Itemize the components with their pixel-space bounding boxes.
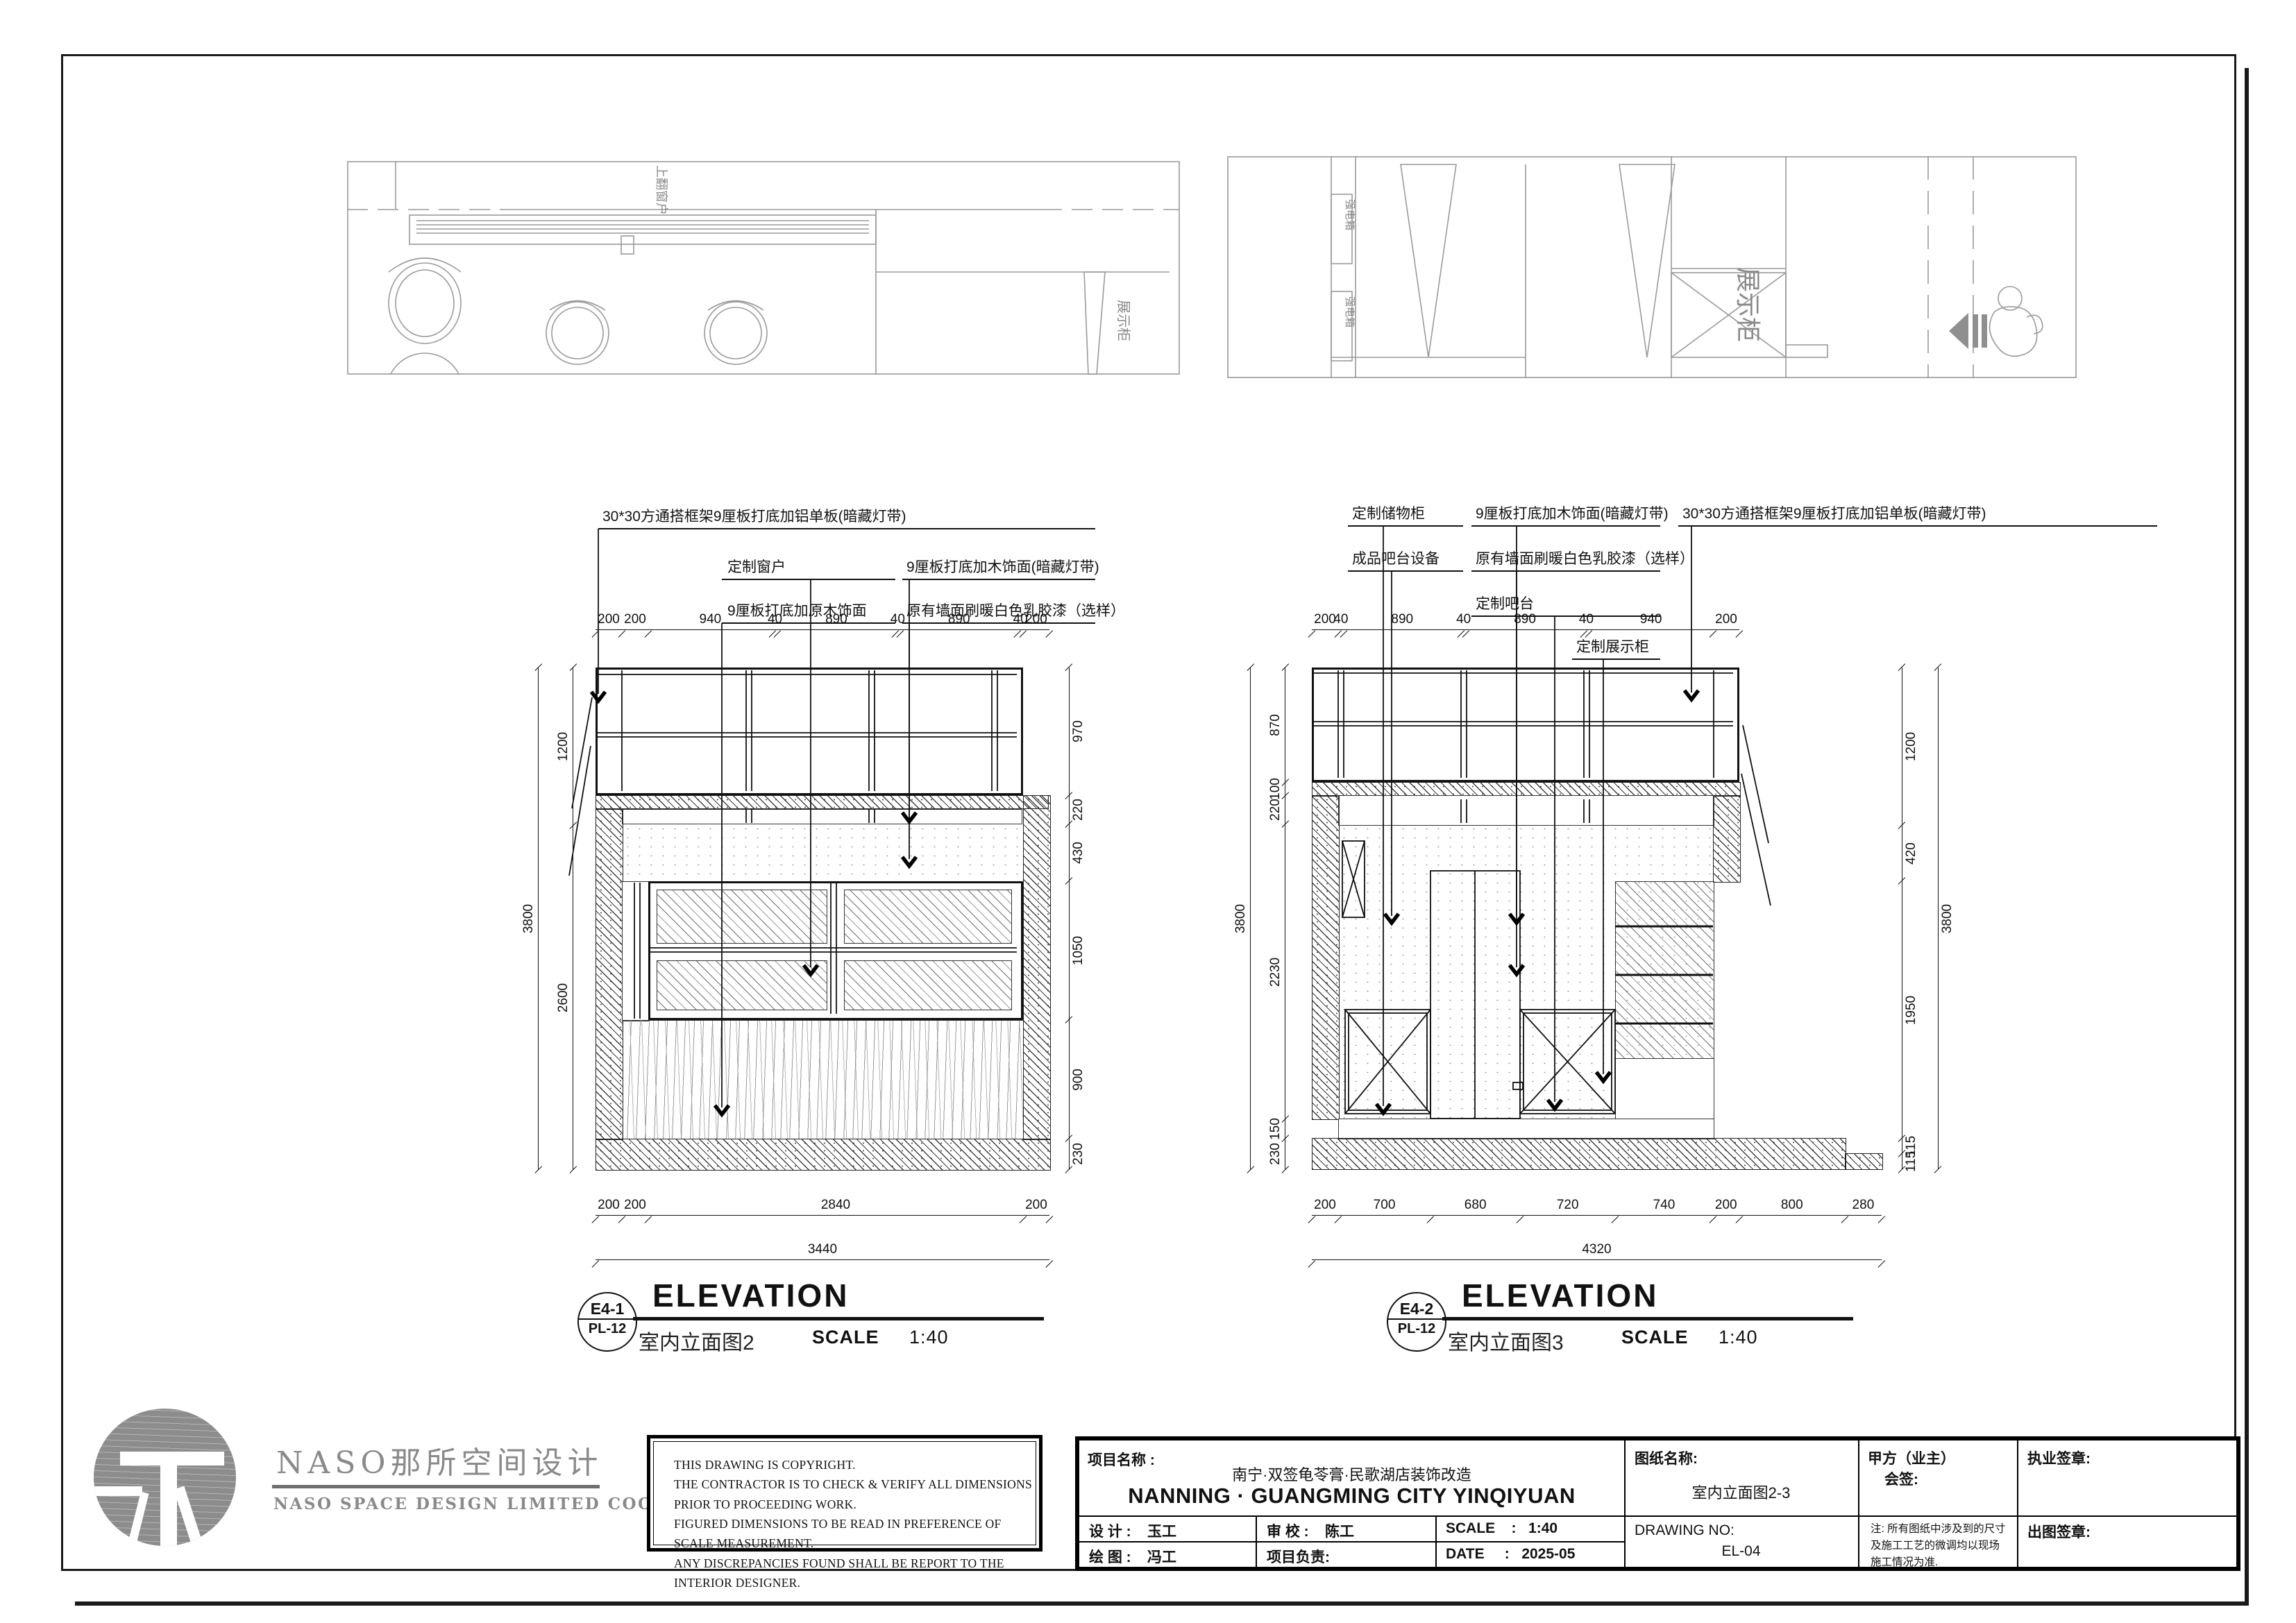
dimension-value: 230 [1268, 1143, 1283, 1165]
dimension-value: 940 [700, 612, 722, 627]
elev2-callout-aluminum-panel: 30*30方通搭框架9厘板打底加铝单板(暗藏灯带) [602, 505, 906, 526]
page-shadow-bottom [75, 1601, 2249, 1606]
revision-note: 注: 所有图纸中涉及到的尺寸及施工工艺的微调均以现场施工情况为准. [1871, 1521, 2009, 1571]
elev2-dims-top: 200200940408904089040200 [596, 609, 1049, 630]
drawing-no-label: DRAWING NO: [1635, 1522, 1734, 1539]
elev3-dims-left: 8701002202230150230 [1266, 668, 1285, 1169]
dimension-value: 200 [598, 612, 620, 627]
elev3-dims-left-total: 3800 [1231, 668, 1251, 1169]
elev3-callout-latex-paint: 原有墙面刷暖白色乳胶漆（选样） [1476, 547, 1694, 568]
checker-label: 审 校 : [1267, 1524, 1309, 1540]
elev3-tag-bubble: E4-2 PL-12 [1387, 1292, 1446, 1352]
dimension-value: 1200 [1904, 732, 1919, 761]
copyright-box: THIS DRAWING IS COPYRIGHT. THE CONTRACTO… [647, 1435, 1043, 1552]
elev3-toe-kick [1338, 1119, 1714, 1139]
dimension-value: 720 [1557, 1198, 1579, 1213]
copyright-line-1: THIS DRAWING IS COPYRIGHT. [674, 1455, 1039, 1475]
date-label: DATE [1446, 1546, 1485, 1562]
dimension-value: 1950 [1904, 996, 1919, 1025]
designer-cell: 设 计 : 玉工 [1089, 1520, 1176, 1541]
dimension-value: 1200 [556, 732, 571, 761]
elev3-callout-bar-equipment: 成品吧台设备 [1352, 547, 1440, 568]
title-block: 项目名称 : 南宁·双签龟苓膏·民歌湖店装饰改造 NANNING · GUANG… [1075, 1436, 2240, 1571]
company-logo-mark [94, 1409, 236, 1546]
elev2-callout-wood-finish: 9厘板打底加木饰面(暗藏灯带) [906, 556, 1099, 577]
dimension-value: 940 [1640, 612, 1662, 627]
issue-seal-label: 出图签章: [2027, 1521, 2091, 1542]
elev3-title-cn: 室内立面图3 [1448, 1325, 1564, 1356]
drafter-value: 冯工 [1147, 1549, 1176, 1565]
elev2-tag: E4-1 [591, 1293, 625, 1318]
dimension-value: 200 [624, 612, 646, 627]
project-lead-cell: 项目负责: [1267, 1546, 1330, 1567]
dimension-value: 740 [1653, 1198, 1675, 1213]
elev3-callout-display-cabinet: 定制展示柜 [1576, 636, 1649, 656]
elev3-top-frame [1312, 668, 1739, 782]
elev3-dims-top: 200408904089040940200 [1312, 609, 1739, 630]
elev2-scale-label: SCALE [812, 1327, 879, 1348]
scale-cell: SCALE : 1:40 [1446, 1520, 1558, 1537]
drafter-cell: 绘 图 : 冯工 [1089, 1546, 1176, 1567]
elev3-dims-right: 12004201950115115 [1902, 668, 1921, 1169]
scale-label: SCALE [1446, 1520, 1495, 1536]
dimension-value: 970 [1071, 720, 1086, 742]
elev3-display-base [1615, 1058, 1714, 1120]
dimension-value: 800 [1781, 1198, 1803, 1213]
elev3-title-underline [1442, 1317, 1853, 1320]
dimension-value: 2230 [1268, 957, 1283, 986]
checker-value: 陈工 [1325, 1524, 1354, 1540]
elev2-slab-band [596, 795, 1049, 809]
elev3-scale-value: 1:40 [1719, 1327, 1758, 1348]
sheet-name-label: 图纸名称: [1635, 1447, 1698, 1468]
elev3-slab-band [1312, 782, 1741, 797]
drafter-label: 绘 图 : [1089, 1549, 1131, 1565]
elev3-dims-bottom-total: 4320 [1312, 1239, 1882, 1260]
elev2-tag-bubble: E4-1 PL-12 [577, 1292, 637, 1352]
copyright-line-3: FIGURED DIMENSIONS TO BE READ IN PREFERE… [674, 1514, 1039, 1554]
elev3-display-glass [1615, 881, 1714, 1060]
elev2-dims-left-total: 3800 [519, 668, 539, 1169]
elev3-floor-step [1845, 1153, 1883, 1170]
elev2-title-cn: 室内立面图2 [639, 1325, 754, 1356]
elev2-callout-custom-window: 定制窗户 [727, 556, 786, 577]
elev3-dims-right-total: 3800 [1938, 668, 1957, 1169]
dimension-value: 890 [1514, 612, 1536, 627]
date-cell: DATE : 2025-05 [1446, 1546, 1575, 1563]
elev2-window-pane-1 [657, 890, 827, 944]
elev2-dims-left: 12002600 [554, 668, 573, 1169]
elev3-tag: E4-2 [1400, 1293, 1434, 1318]
elev3-dims-bottom: 200700680720740200800280 [1312, 1195, 1882, 1216]
elev3-callout-aluminum-panel: 30*30方通搭框架9厘板打底加铝单板(暗藏灯带) [1682, 502, 1986, 523]
dimension-value: 3800 [1233, 903, 1249, 933]
copyright-line-2: THE CONTRACTOR IS TO CHECK & VERIFY ALL … [674, 1475, 1039, 1514]
dimension-value: 150 [1268, 1118, 1283, 1140]
scale-value: 1:40 [1528, 1520, 1558, 1536]
dimension-value: 430 [1071, 842, 1086, 864]
dimension-value: 220 [1071, 799, 1086, 822]
dimension-value: 200 [1314, 612, 1336, 627]
elev3-right-wall-column [1713, 795, 1741, 883]
elev3-ceiling-band [1338, 795, 1714, 826]
designer-value: 玉工 [1147, 1524, 1176, 1540]
dimension-value: 420 [1904, 842, 1919, 865]
dimension-value: 115 [1904, 1151, 1919, 1172]
designer-label: 设 计 : [1089, 1524, 1131, 1540]
dimension-value: 200 [1025, 1198, 1047, 1213]
dimension-value: 3800 [521, 903, 537, 933]
elev3-sheet-ref: PL-12 [1388, 1318, 1445, 1337]
dimension-value: 700 [1374, 1198, 1396, 1213]
company-name-cn: NASO那所空间设计 [276, 1438, 603, 1482]
plan-left-display-label: 展示柜 [1115, 300, 1131, 341]
plan-right-power-box-label-1: 强电箱 [1344, 199, 1356, 230]
elev2-scale-value: 1:40 [909, 1327, 949, 1348]
date-colon: : [1505, 1546, 1510, 1562]
project-name-cn: 南宁·双签龟苓膏·民歌湖店装饰改造 [1079, 1463, 1624, 1485]
elev2-window-pane-4 [844, 960, 1012, 1010]
elev2-window-pane-3 [657, 960, 827, 1010]
drawing-no-value: EL-04 [1624, 1543, 1858, 1560]
dimension-value: 3800 [1940, 903, 1955, 933]
copyright-line-4: ANY DISCREPANCIES FOUND SHALL BE REPORT … [674, 1554, 1039, 1593]
plan-right-power-box-label-2: 强电箱 [1344, 296, 1356, 328]
dimension-value: 200 [624, 1198, 646, 1213]
drawing-sheet: 上翻窗户 展示柜 [0, 0, 2296, 1623]
dimension-value: 280 [1852, 1198, 1875, 1213]
page-shadow-right [2245, 68, 2249, 1606]
plan-left-window-label: 上翻窗户 [655, 165, 668, 215]
dimension-value: 230 [1071, 1143, 1086, 1165]
elev2-reveal-band [622, 809, 1022, 824]
project-name-en: NANNING · GUANGMING CITY YINQIYUAN [1079, 1484, 1624, 1509]
dimension-value: 200 [598, 1198, 620, 1213]
plan-view-left: 上翻窗户 展示柜 [347, 161, 1180, 375]
dimension-value: 200 [1715, 1198, 1737, 1213]
elev2-upper-wall [622, 824, 1023, 881]
elev3-callout-wood-finish: 9厘板打底加木饰面(暗藏灯带) [1476, 502, 1669, 523]
sheet-name-value: 室内立面图2-3 [1624, 1481, 1858, 1503]
dimension-value: 2840 [821, 1198, 850, 1213]
elev2-floor-band [596, 1139, 1051, 1171]
elev2-window-pane-2 [844, 890, 1012, 944]
dimension-value: 1050 [1071, 936, 1086, 965]
dimension-value: 870 [1268, 714, 1283, 736]
elev2-right-wall-column [1023, 795, 1051, 1140]
elev3-callout-storage-cabinet: 定制储物柜 [1352, 502, 1425, 523]
dimension-value: 680 [1464, 1198, 1487, 1213]
dimension-value: 220 [1268, 799, 1283, 822]
elev2-top-frame [596, 668, 1023, 795]
elev3-title: ELEVATION [1462, 1277, 1658, 1314]
scale-colon: : [1512, 1520, 1517, 1536]
dimension-value: 200 [1314, 1198, 1336, 1213]
elev3-left-wall-column [1312, 795, 1340, 1120]
elev3-scale-label: SCALE [1621, 1327, 1689, 1348]
client-countersign-label: 会签: [1884, 1468, 1918, 1489]
dimension-value: 890 [1391, 612, 1413, 627]
checker-cell: 审 校 : 陈工 [1267, 1520, 1354, 1541]
dimension-value: 890 [825, 612, 847, 627]
dimension-value: 200 [1715, 612, 1737, 627]
date-value: 2025-05 [1521, 1546, 1575, 1562]
elev2-door-jamb-strip [622, 881, 650, 1021]
logo-divider [272, 1485, 600, 1488]
elev2-dims-bottom: 2002002840200 [596, 1195, 1049, 1216]
dimension-value: 3440 [808, 1242, 837, 1257]
elev2-title: ELEVATION [652, 1277, 849, 1314]
elev2-sheet-ref: PL-12 [579, 1318, 636, 1337]
dimension-value: 890 [948, 612, 970, 627]
dimension-value: 2600 [556, 983, 571, 1012]
elev2-dims-bottom-total: 3440 [596, 1239, 1049, 1260]
dimension-value: 4320 [1582, 1242, 1611, 1257]
elev2-wood-wall [622, 1020, 1023, 1139]
dimension-value: 900 [1071, 1069, 1086, 1091]
dimension-value: 200 [1025, 612, 1047, 627]
project-lead-label: 项目负责: [1267, 1549, 1330, 1565]
elev2-title-underline [633, 1317, 1044, 1320]
elev3-floor-band [1312, 1138, 1846, 1170]
elev2-dims-right: 9702204301050900230 [1069, 668, 1088, 1169]
plan-view-right: 强电箱 强电箱 展示柜 [1227, 156, 2077, 378]
client-label: 甲方（业主） [1868, 1447, 1955, 1468]
plan-right-display-cabinet-label: 展示柜 [1734, 267, 1762, 342]
license-seal-label: 执业签章: [2027, 1447, 2091, 1468]
elev2-left-wall-column [596, 809, 623, 1140]
